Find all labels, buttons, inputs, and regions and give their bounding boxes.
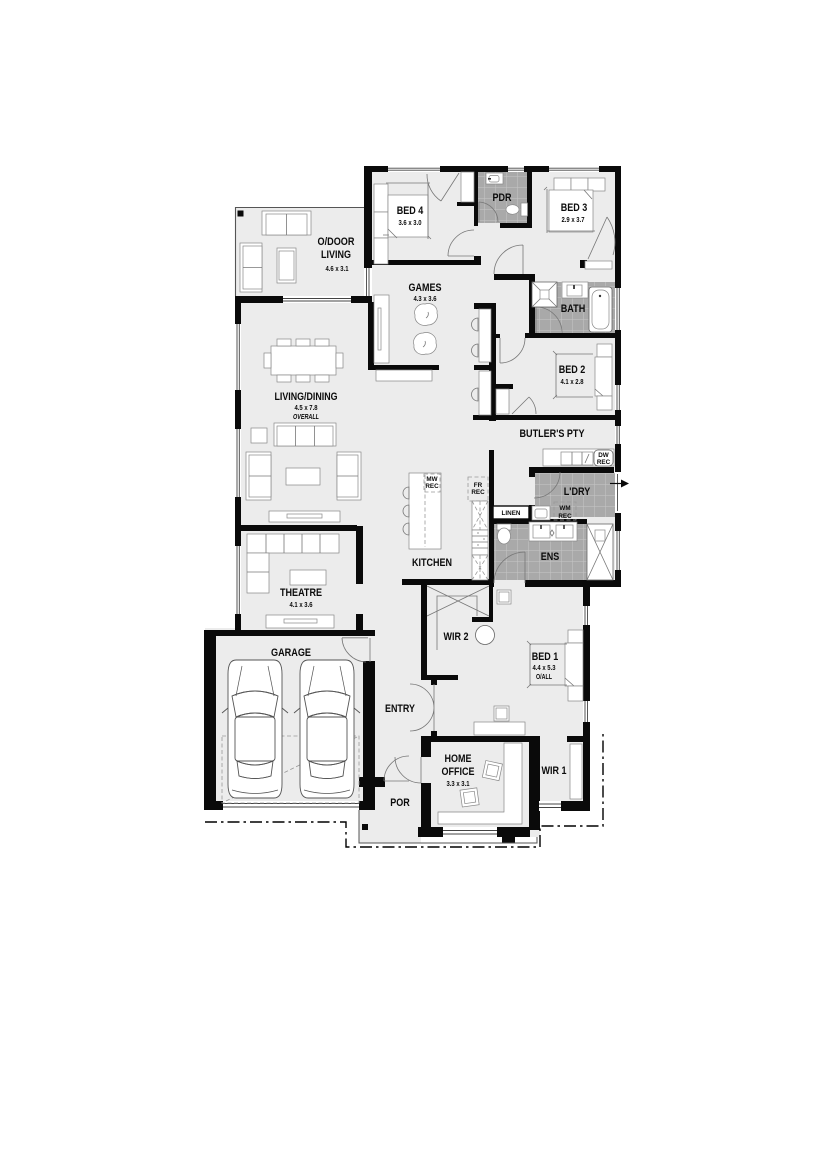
svg-text:BATH: BATH <box>561 303 586 315</box>
svg-text:3.3 x 3.1: 3.3 x 3.1 <box>447 779 470 788</box>
svg-text:GARAGE: GARAGE <box>271 647 311 659</box>
svg-text:WIR 1: WIR 1 <box>542 765 567 777</box>
svg-text:HOME: HOME <box>445 753 472 765</box>
svg-text:ENS: ENS <box>541 551 560 563</box>
svg-text:ENTRY: ENTRY <box>385 703 416 715</box>
svg-text:REC: REC <box>558 513 572 520</box>
svg-text:LIVING: LIVING <box>321 249 351 261</box>
svg-text:LINEN: LINEN <box>502 510 521 517</box>
svg-text:WIR 2: WIR 2 <box>444 631 469 643</box>
svg-text:L'DRY: L'DRY <box>564 486 591 498</box>
svg-text:4.3 x 3.6: 4.3 x 3.6 <box>414 294 437 303</box>
svg-text:3.6 x 3.0: 3.6 x 3.0 <box>399 218 422 227</box>
svg-text:BED 1: BED 1 <box>532 651 559 663</box>
svg-text:4.1 x 3.6: 4.1 x 3.6 <box>290 600 313 609</box>
svg-text:BED 2: BED 2 <box>559 364 586 376</box>
svg-text:4.6 x 3.1: 4.6 x 3.1 <box>326 264 349 273</box>
svg-text:BED 4: BED 4 <box>397 205 424 217</box>
svg-text:REC: REC <box>471 489 485 496</box>
svg-text:OVERALL: OVERALL <box>293 412 319 421</box>
svg-text:LIVING/DINING: LIVING/DINING <box>275 391 338 403</box>
svg-text:4.1 x 2.8: 4.1 x 2.8 <box>561 377 584 386</box>
svg-text:OFFICE: OFFICE <box>442 766 475 778</box>
svg-text:REC: REC <box>425 483 439 490</box>
svg-text:DW: DW <box>598 452 609 459</box>
svg-text:FR: FR <box>474 482 483 489</box>
svg-text:BED 3: BED 3 <box>561 202 588 214</box>
svg-text:THEATRE: THEATRE <box>280 587 322 599</box>
svg-text:4.5 x 7.8: 4.5 x 7.8 <box>295 403 318 412</box>
svg-text:MW: MW <box>426 476 437 483</box>
svg-text:REC: REC <box>597 459 611 466</box>
svg-text:BUTLER'S PTY: BUTLER'S PTY <box>520 428 586 440</box>
svg-text:4.4 x 5.3: 4.4 x 5.3 <box>533 663 556 672</box>
svg-text:GAMES: GAMES <box>409 282 442 294</box>
svg-text:KITCHEN: KITCHEN <box>412 557 452 569</box>
svg-text:PDR: PDR <box>493 192 512 204</box>
svg-text:2.9 x 3.7: 2.9 x 3.7 <box>562 215 585 224</box>
svg-text:O/ALL: O/ALL <box>536 672 552 681</box>
svg-text:O/DOOR: O/DOOR <box>318 236 355 248</box>
svg-text:WM: WM <box>559 505 570 512</box>
svg-text:POR: POR <box>390 797 410 809</box>
